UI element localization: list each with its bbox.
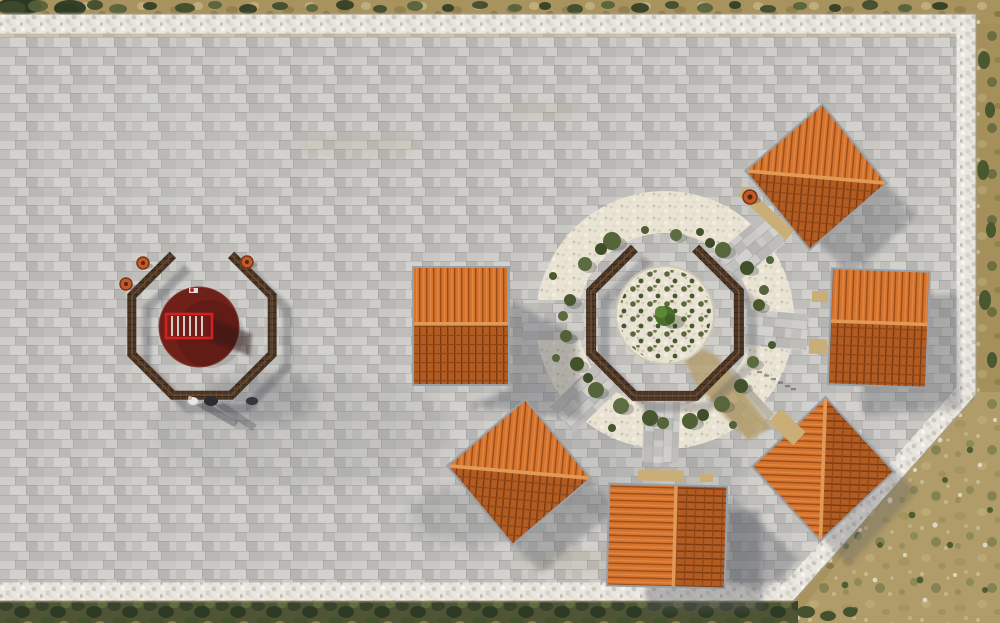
aerial-photo-plaza: Top-down aerial view of a limestone-pave… [0, 0, 1000, 623]
roof-slope-shaded [413, 324, 509, 385]
central-tree [655, 306, 675, 326]
roof-ridge [413, 322, 509, 326]
bench-east-a [812, 291, 828, 303]
roof-slope-sunlit [607, 483, 677, 587]
platform-marker [189, 288, 198, 293]
dark-object [246, 397, 258, 405]
bench-east-b [809, 339, 828, 355]
roof-slope-shaded [674, 485, 728, 588]
scrub-east-margin [976, 24, 1000, 392]
roof-slope-sunlit [830, 268, 930, 324]
roof-slope-shaded [828, 321, 928, 387]
person-dark [204, 396, 218, 406]
roof-slope-sunlit [413, 267, 509, 324]
pavilion-south [607, 483, 728, 588]
planting-circle [616, 266, 714, 364]
deck-south-small [700, 474, 713, 482]
scene-canvas: Top-down aerial view of a limestone-pave… [0, 0, 1000, 623]
red-slatted-frame [166, 314, 212, 338]
deck-south [638, 469, 684, 481]
pavilion-east [828, 268, 930, 387]
pavilion-west [413, 267, 509, 385]
